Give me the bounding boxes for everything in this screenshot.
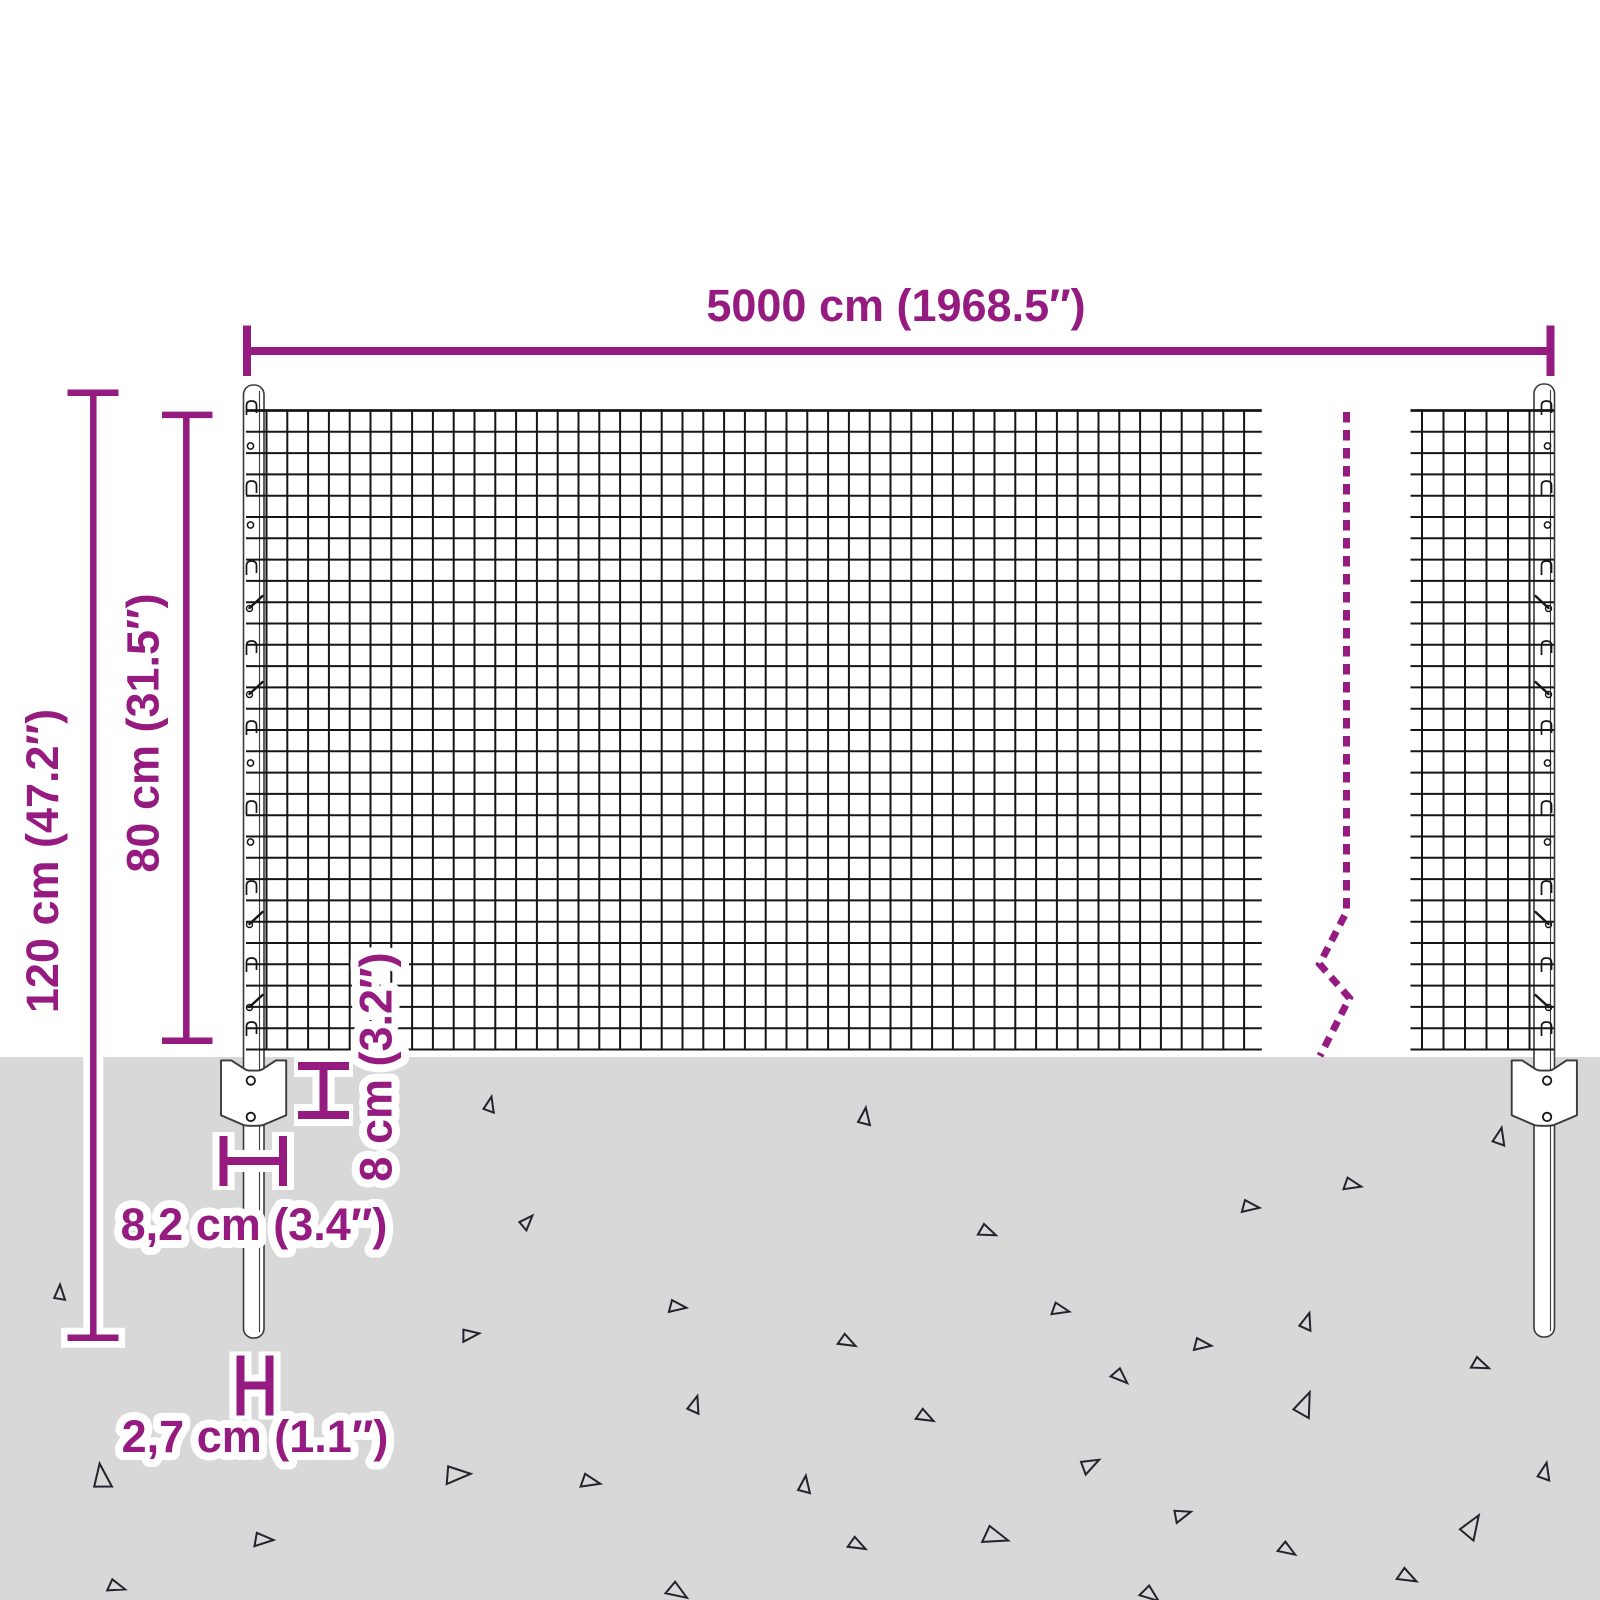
svg-text:5000 cm (1968.5″): 5000 cm (1968.5″) (706, 280, 1085, 331)
svg-text:8 cm (3.2″): 8 cm (3.2″) (351, 952, 402, 1181)
svg-text:2,7 cm (1.1″): 2,7 cm (1.1″) (122, 1411, 389, 1462)
svg-text:120 cm (47.2″): 120 cm (47.2″) (17, 709, 68, 1013)
svg-text:8,2 cm (3.4″): 8,2 cm (3.4″) (121, 1199, 388, 1250)
svg-text:80 cm (31.5″): 80 cm (31.5″) (118, 593, 169, 872)
